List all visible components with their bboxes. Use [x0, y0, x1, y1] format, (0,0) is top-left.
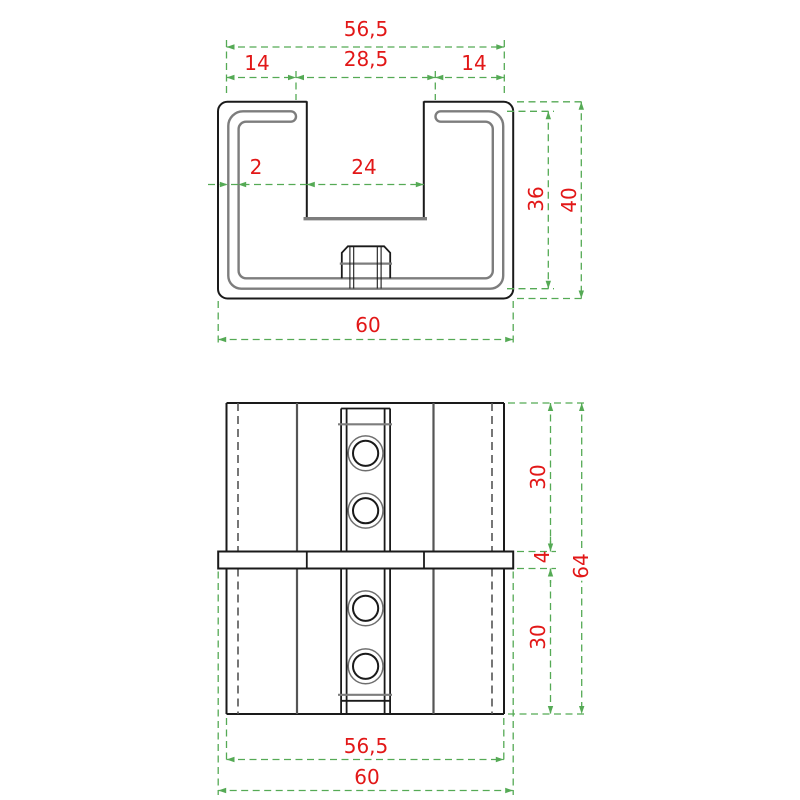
thread-lines [350, 247, 381, 289]
screw-boss [342, 246, 390, 278]
dim-front-overall-height: 64 [571, 551, 591, 580]
front-view [218, 403, 513, 714]
dim-overall-height: 40 [559, 187, 579, 212]
dim-tube-height: 36 [526, 186, 546, 211]
dim-overall-width: 60 [355, 315, 380, 335]
hole-1 [353, 441, 378, 466]
dim-wall-thickness: 2 [250, 157, 263, 177]
dim-mouth-outer: 28,5 [344, 49, 389, 69]
dim-tube-width: 56,5 [344, 19, 389, 39]
dim-flange-width: 60 [354, 767, 379, 787]
dim-flange-thickness: 4 [532, 551, 552, 564]
dim-upper-section: 30 [528, 464, 548, 489]
hole-4 [353, 654, 378, 679]
technical-drawing: 56,5 14 28,5 14 2 24 36 40 60 30 4 30 64… [0, 0, 800, 800]
drawing-canvas [0, 0, 800, 800]
dim-lip-right: 14 [461, 53, 486, 73]
hole-3 [353, 596, 378, 621]
dimension-arrows [218, 44, 584, 793]
tube-wall-profile [228, 111, 503, 288]
dim-body-width: 56,5 [344, 736, 389, 756]
dim-mouth-inner: 24 [351, 157, 376, 177]
dim-lower-section: 30 [528, 624, 548, 649]
top-view-section [218, 101, 513, 298]
flange-band [218, 552, 513, 569]
dim-lip-left: 14 [244, 53, 269, 73]
dimension-lines [208, 40, 588, 795]
cap-outer-contour [218, 102, 513, 299]
hole-2 [353, 498, 378, 523]
